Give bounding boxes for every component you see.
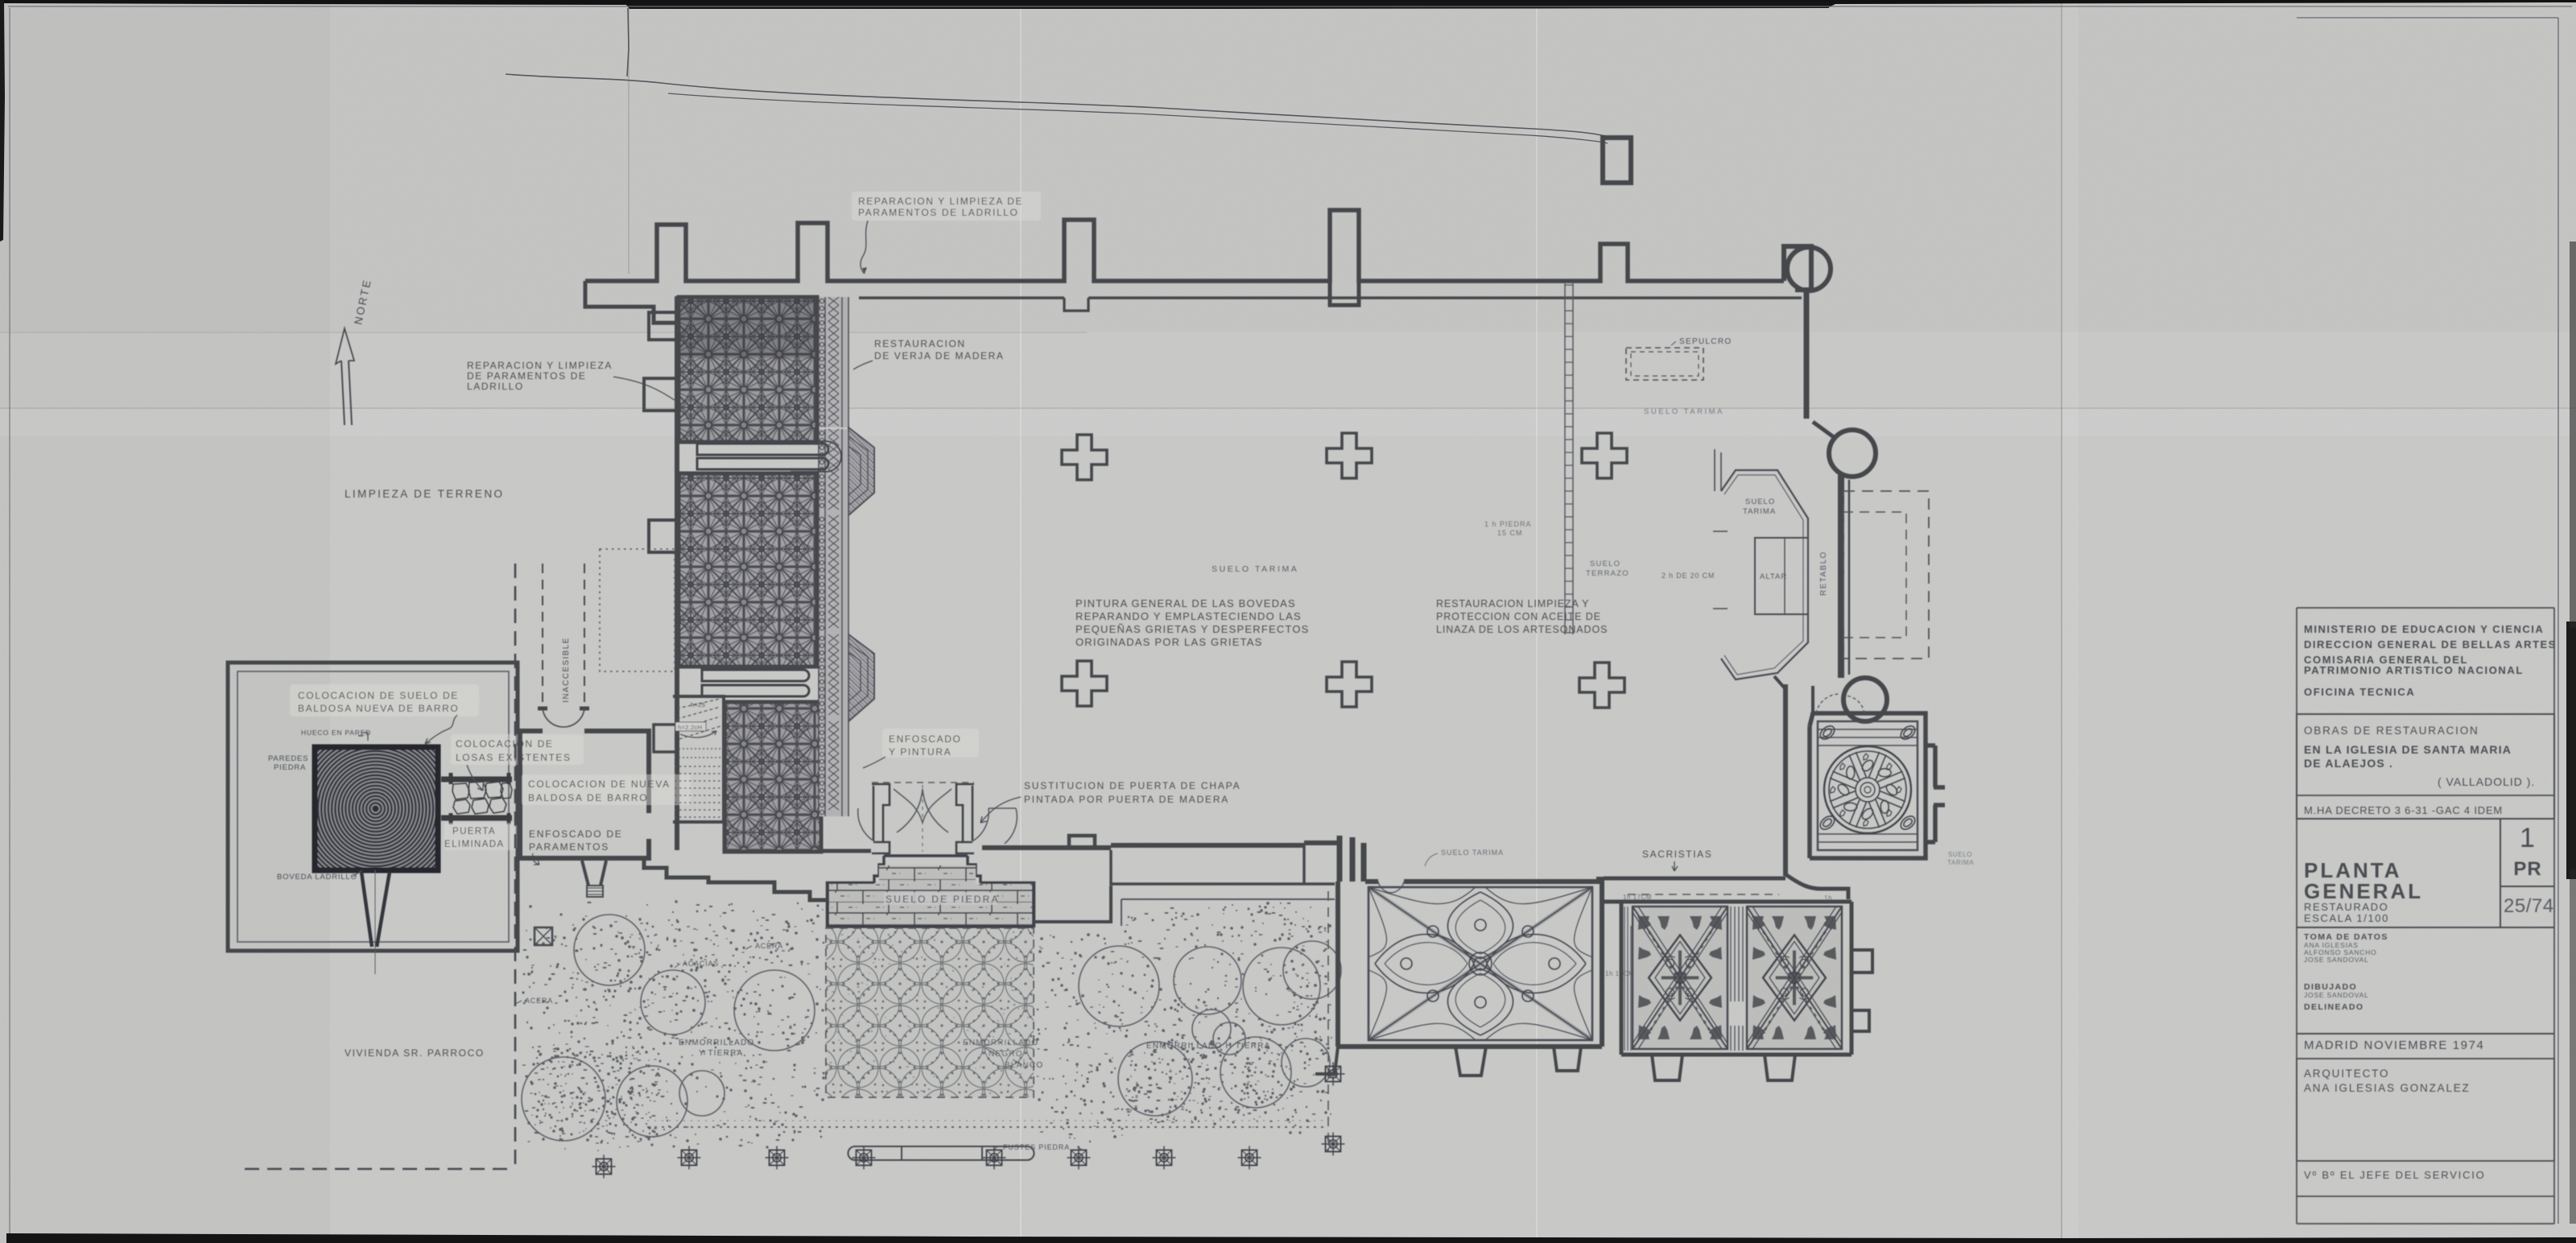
svg-text:SUELO DE PIEDRA: SUELO DE PIEDRA — [885, 894, 1000, 905]
svg-text:ENMORRILLADO H TIERRA: ENMORRILLADO H TIERRA — [1146, 1042, 1270, 1051]
svg-text:PINTURA GENERAL DE LAS BOV: PINTURA GENERAL DE LAS BOVEDAS — [1075, 597, 1296, 609]
svg-text:1: 1 — [2520, 823, 2536, 853]
svg-text:ORIGINADAS POR LAS GRIETAS: ORIGINADAS POR LAS GRIETAS — [1075, 636, 1263, 648]
svg-text:RESTAURADO: RESTAURADO — [2304, 901, 2388, 913]
svg-text:SUELO TARIMA: SUELO TARIMA — [1212, 564, 1298, 574]
svg-text:ACACIAS: ACACIAS — [683, 960, 719, 968]
svg-text:ENFOSCADO DE: ENFOSCADO DE — [529, 828, 622, 840]
svg-text:TERRAZO: TERRAZO — [1586, 569, 1629, 578]
svg-text:REPARACION Y LIMPIEZA DE: REPARACION Y LIMPIEZA DE — [858, 196, 1023, 207]
svg-text:h=2.2cH: h=2.2cH — [678, 724, 702, 731]
svg-text:ENMORRILLADO: ENMORRILLADO — [679, 1039, 754, 1047]
svg-text:PATRIMONIO ARTISTICO NACIO: PATRIMONIO ARTISTICO NACIONAL — [2304, 664, 2524, 676]
svg-text:Vº Bº EL JEFE DEL SER: Vº Bº EL JEFE DEL SERVICIO — [2304, 1169, 2486, 1181]
svg-text:( VALLADOLID ).: ( VALLADOLID ). — [2438, 775, 2535, 788]
svg-text:1h: 1h — [1824, 894, 1832, 902]
svg-text:RESTAURACION LIMPIEZA Y: RESTAURACION LIMPIEZA Y — [1436, 598, 1589, 609]
svg-text:PROTECCION CON ACEITE DE: PROTECCION CON ACEITE DE — [1436, 611, 1601, 622]
svg-text:TARIMA: TARIMA — [1947, 859, 1974, 866]
svg-text:1h 17CM: 1h 17CM — [1623, 894, 1652, 901]
svg-text:TARIMA: TARIMA — [1743, 507, 1776, 516]
svg-text:REPARACION Y LIMPIEZA: REPARACION Y LIMPIEZA — [467, 360, 613, 371]
svg-text:ARQUITECTO: ARQUITECTO — [2304, 1067, 2389, 1080]
svg-text:RETABLO: RETABLO — [1819, 551, 1828, 596]
svg-text:VIVIENDA SR. PARROCO: VIVIENDA SR. PARROCO — [345, 1047, 485, 1059]
svg-text:SUELO: SUELO — [1745, 498, 1775, 506]
svg-text:ACERA: ACERA — [755, 942, 783, 950]
svg-text:PARAMENTOS: PARAMENTOS — [529, 841, 609, 853]
svg-text:ENMORRILLADO: ENMORRILLADO — [963, 1039, 1038, 1047]
svg-text:RESTAURACION: RESTAURACION — [874, 338, 966, 349]
svg-text:PEQUEÑAS GRIETAS Y DESPERFE: PEQUEÑAS GRIETAS Y DESPERFECTOS — [1075, 623, 1310, 635]
svg-text:SEPULCRO: SEPULCRO — [1679, 337, 1732, 346]
svg-text:LIMPIEZA DE TERRENO: LIMPIEZA DE TERRENO — [345, 488, 504, 500]
svg-text:JOSE SANDOVAL: JOSE SANDOVAL — [2304, 991, 2369, 999]
svg-text:PINTADA POR PUERTA DE MADE: PINTADA POR PUERTA DE MADERA — [1024, 794, 1229, 805]
svg-text:SUELO: SUELO — [1948, 851, 1972, 858]
svg-text:JOSE SANDOVAL: JOSE SANDOVAL — [2304, 956, 2369, 964]
svg-text:BALDOSA NUEVA DE BARRO: BALDOSA NUEVA DE BARRO — [298, 703, 459, 714]
svg-text:PUERTA: PUERTA — [452, 827, 496, 836]
svg-text:PAREDES: PAREDES — [268, 754, 308, 763]
svg-text:DE ALAEJOS .: DE ALAEJOS . — [2304, 757, 2393, 770]
svg-text:BOVEDA LADRILLO: BOVEDA LADRILLO — [277, 873, 357, 882]
svg-text:FUSTES PIEDRA: FUSTES PIEDRA — [1003, 1143, 1070, 1151]
svg-text:1 h PIEDRA: 1 h PIEDRA — [1484, 520, 1532, 528]
svg-text:SUELO: SUELO — [1590, 560, 1620, 568]
svg-text:SACRISTIAS: SACRISTIAS — [1642, 849, 1712, 860]
svg-text:BLANCO: BLANCO — [1005, 1061, 1043, 1070]
svg-text:BALDOSA DE BARRO: BALDOSA DE BARRO — [528, 792, 648, 803]
svg-text:INACCESIBLE: INACCESIBLE — [562, 637, 571, 703]
svg-text:ANA IGLESIAS GONZALEZ: ANA IGLESIAS GONZALEZ — [2304, 1082, 2471, 1094]
svg-text:ACERA: ACERA — [525, 997, 553, 1005]
svg-text:DE VERJA DE MADERA: DE VERJA DE MADERA — [874, 350, 1005, 361]
svg-text:COLOCACION DE NUEVA: COLOCACION DE NUEVA — [528, 778, 671, 790]
svg-text:ALTAR: ALTAR — [1760, 572, 1787, 581]
svg-text:COLOCACION DE: COLOCACION DE — [456, 738, 553, 750]
svg-text:DIRECCION GENERAL DE BELLAS: DIRECCION GENERAL DE BELLAS ARTES — [2304, 638, 2557, 650]
svg-text:SUELO TARIMA: SUELO TARIMA — [1441, 849, 1504, 857]
svg-text:2 h DE 20 CM: 2 h DE 20 CM — [1662, 572, 1715, 580]
svg-text:LINAZA DE LOS ARTESONADOS: LINAZA DE LOS ARTESONADOS — [1436, 624, 1608, 635]
svg-text:SUELO TARIMA: SUELO TARIMA — [1644, 407, 1724, 416]
svg-text:ELIMINADA: ELIMINADA — [444, 840, 505, 849]
svg-text:OBRAS DE RESTAURACION: OBRAS DE RESTAURACION — [2304, 725, 2479, 737]
svg-text:h=25: h=25 — [691, 701, 705, 708]
svg-text:OFICINA TECNICA: OFICINA TECNICA — [2304, 686, 2415, 698]
svg-text:NEGRO: NEGRO — [989, 1050, 1023, 1059]
svg-text:MADRID NOVIEMBRE 1974: MADRID NOVIEMBRE 1974 — [2304, 1039, 2484, 1052]
svg-text:EN LA IGLESIA DE SANTA MARI: EN LA IGLESIA DE SANTA MARIA — [2304, 743, 2512, 756]
svg-text:PIEDRA: PIEDRA — [274, 763, 306, 772]
svg-text:REPARANDO Y EMPLASTECIENDO L: REPARANDO Y EMPLASTECIENDO LAS — [1075, 610, 1302, 622]
svg-text:25/74: 25/74 — [2504, 895, 2554, 917]
svg-text:ENFOSCADO: ENFOSCADO — [889, 733, 961, 745]
svg-text:MINISTERIO DE EDUCACION Y: MINISTERIO DE EDUCACION Y CIENCIA — [2304, 623, 2544, 635]
svg-text:M.HA DECRETO 3 6-31 -GAC 4 ID: M.HA DECRETO 3 6-31 -GAC 4 IDEM — [2304, 804, 2503, 816]
svg-text:SUSTITUCION DE PUERTA DE C: SUSTITUCION DE PUERTA DE CHAPA — [1024, 780, 1241, 791]
svg-text:DELINEADO: DELINEADO — [2304, 1002, 2363, 1012]
svg-text:Y TIERRA: Y TIERRA — [699, 1049, 743, 1058]
svg-text:PR: PR — [2513, 858, 2541, 880]
svg-text:Y PINTURA: Y PINTURA — [889, 746, 952, 758]
svg-text:COLOCACION DE SUELO DE: COLOCACION DE SUELO DE — [298, 690, 459, 701]
svg-text:PARAMENTOS DE LADRILLO: PARAMENTOS DE LADRILLO — [858, 207, 1018, 218]
svg-text:GENERAL: GENERAL — [2304, 879, 2423, 903]
svg-text:LOSAS EXISTENTES: LOSAS EXISTENTES — [456, 752, 572, 763]
svg-text:ESCALA 1/100: ESCALA 1/100 — [2304, 912, 2389, 924]
svg-text:DE PARAMENTOS DE: DE PARAMENTOS DE — [467, 370, 587, 382]
svg-text:15 CM: 15 CM — [1497, 529, 1523, 537]
svg-text:LADRILLO: LADRILLO — [467, 381, 524, 392]
